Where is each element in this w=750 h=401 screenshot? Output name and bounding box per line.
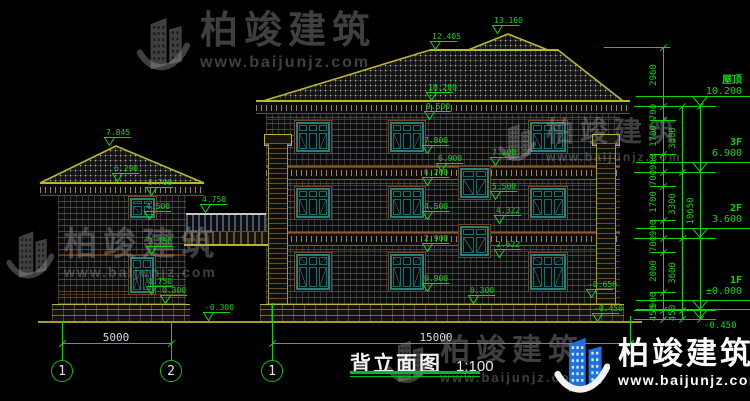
dim-chain-segment: 10650 (686, 189, 696, 233)
level-line (634, 319, 716, 320)
axis-bubble: 1 (261, 360, 283, 382)
window (458, 166, 491, 200)
axis-bubble: 1 (51, 360, 73, 382)
title-underline-thin (350, 376, 480, 377)
title-underline (350, 371, 480, 374)
window (528, 252, 568, 292)
level-line (634, 238, 716, 239)
window (528, 186, 568, 220)
brand-logo: 柏竣建筑® www.baijunjz.com (554, 328, 750, 398)
watermark-brand: 柏竣建筑 (200, 12, 376, 50)
dim-value: 5000 (86, 331, 146, 344)
pilaster-left (268, 144, 288, 304)
dim-chain-line (700, 106, 701, 319)
level-line (604, 47, 670, 48)
dim-value: 15000 (406, 331, 466, 344)
level-line (650, 292, 676, 293)
dim-chain-segment: 3600 (668, 251, 678, 295)
brand-name: 柏竣建筑® (618, 338, 750, 369)
baijun-logo-watermark-icon (136, 10, 190, 74)
watermark: 柏竣建筑 www.baijunjz.com (136, 10, 376, 74)
axis-bubble: 2 (160, 360, 182, 382)
level-line (650, 154, 676, 155)
axis-connector (171, 343, 172, 360)
elevation-drawing-canvas: 背立面图 1:100 柏竣建筑 www.baijunjz.com 柏竣建筑 ww… (0, 0, 750, 401)
level-line (650, 252, 676, 253)
watermark: 柏竣建筑 www.baijunjz.com (6, 224, 220, 282)
axis-connector (272, 343, 273, 360)
window (294, 120, 332, 154)
level-line (650, 186, 676, 187)
level-line (634, 106, 716, 107)
window (388, 252, 426, 292)
baijun-logo-watermark-icon (6, 224, 54, 282)
dim-chain-line (682, 106, 683, 319)
dim-chain-line (663, 47, 664, 319)
left-building-cornice (40, 182, 204, 196)
level-line (634, 310, 716, 311)
level-line (650, 120, 676, 121)
level-line (634, 172, 716, 173)
watermark-site: www.baijunjz.com (64, 264, 220, 280)
level-line (650, 220, 676, 221)
window (458, 224, 491, 258)
window (388, 120, 426, 154)
window (294, 252, 332, 292)
axis-connector (62, 343, 63, 360)
baijun-logo-icon (554, 328, 610, 398)
main-building-roof-peak (468, 34, 548, 50)
window (388, 186, 426, 220)
window (294, 186, 332, 220)
watermark-site: www.baijunjz.com (200, 54, 376, 72)
watermark-brand: 柏竣建筑 (64, 227, 220, 260)
brand-site: www.baijunjz.com (618, 372, 750, 388)
